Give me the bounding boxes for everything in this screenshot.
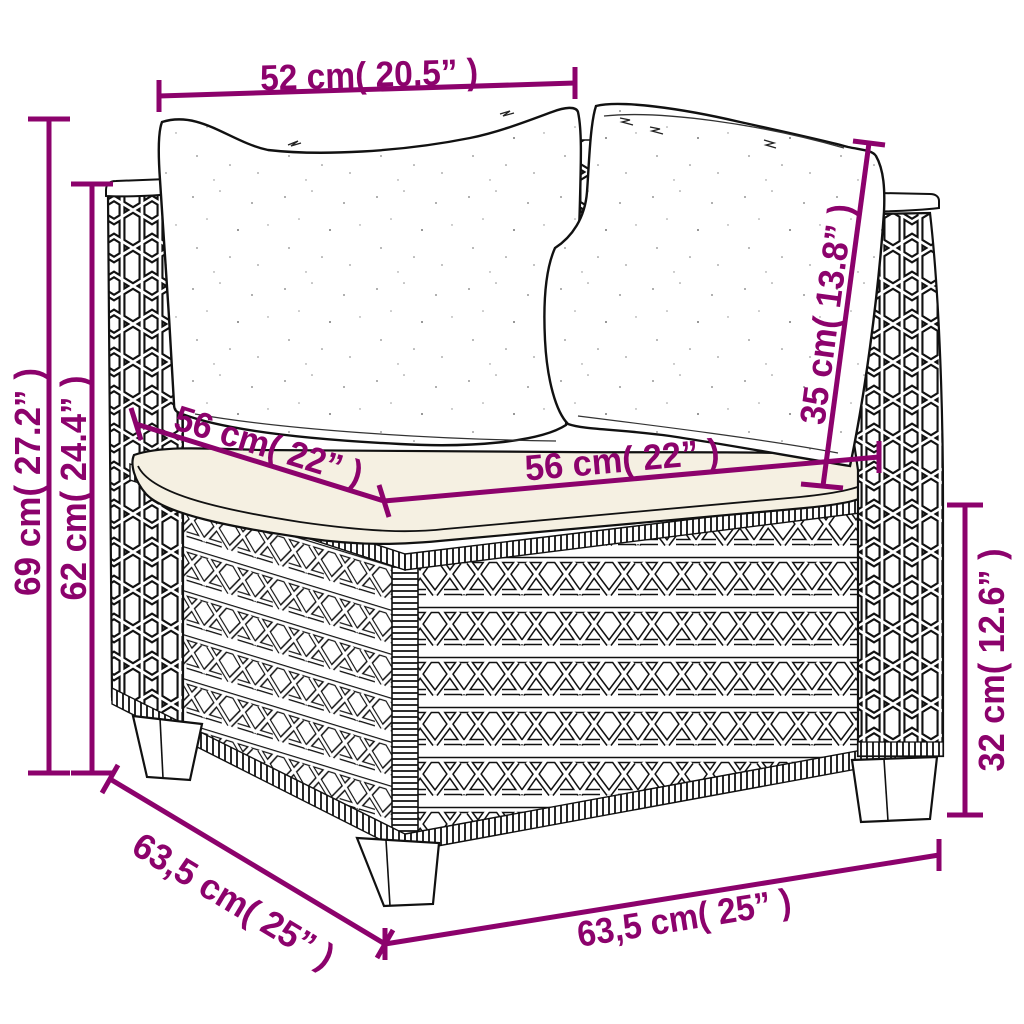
svg-text:63,5 cm( 25” ): 63,5 cm( 25” ) bbox=[574, 880, 794, 955]
svg-text:32 cm( 12.6” ): 32 cm( 12.6” ) bbox=[971, 549, 1012, 772]
svg-text:69 cm( 27.2” ): 69 cm( 27.2” ) bbox=[7, 368, 48, 596]
svg-text:62 cm( 24.4” ): 62 cm( 24.4” ) bbox=[53, 376, 94, 601]
svg-text:52 cm( 20.5” ): 52 cm( 20.5” ) bbox=[259, 51, 478, 99]
